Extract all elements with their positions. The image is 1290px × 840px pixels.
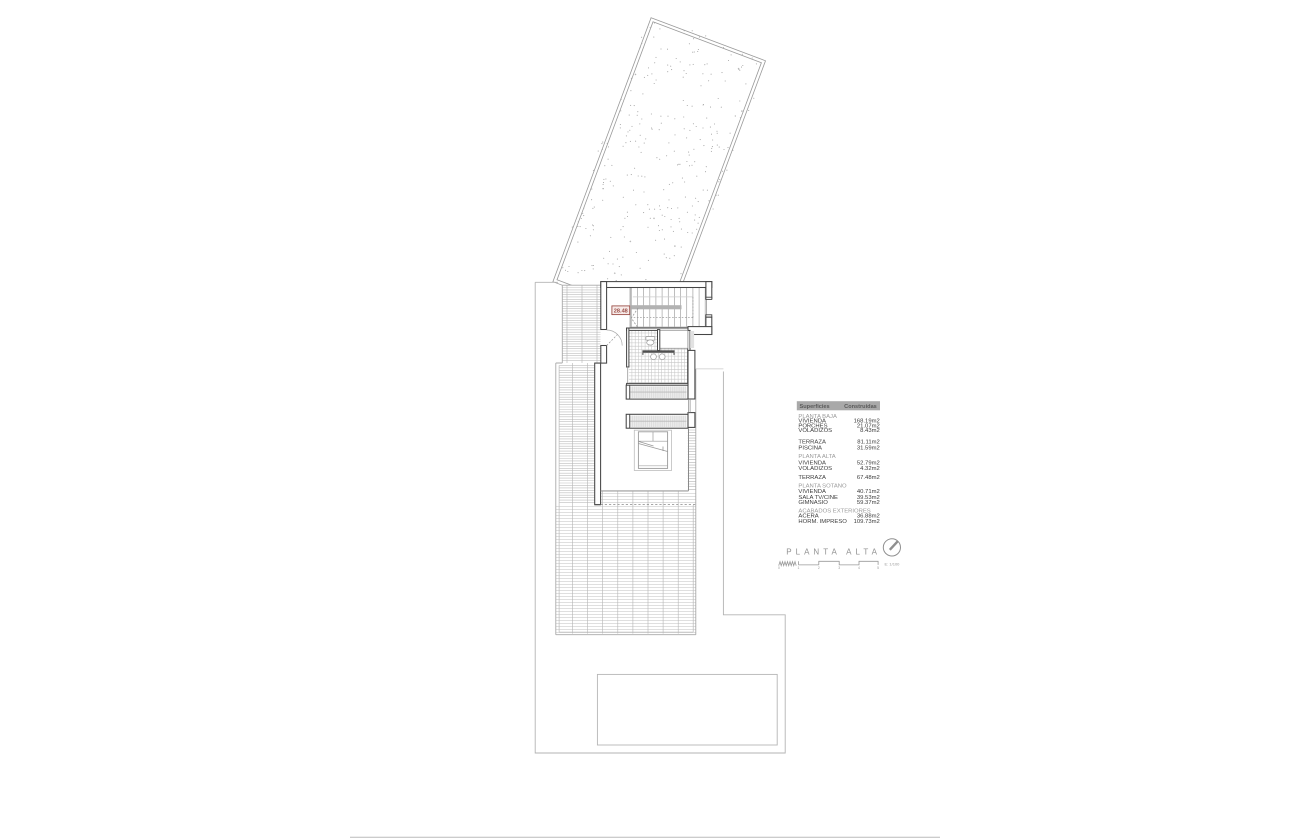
- svg-text:GIMNASIO: GIMNASIO: [798, 500, 828, 506]
- svg-text:4.32m2: 4.32m2: [860, 466, 880, 472]
- svg-text:TERRAZA: TERRAZA: [798, 475, 826, 481]
- svg-text:59.37m2: 59.37m2: [857, 500, 880, 506]
- svg-text:HORM. IMPRESO: HORM. IMPRESO: [798, 519, 847, 525]
- svg-text:VOLADIZOS: VOLADIZOS: [798, 466, 832, 472]
- svg-text:PISCINA: PISCINA: [798, 445, 822, 451]
- svg-text:PLANTA ALTA: PLANTA ALTA: [786, 547, 881, 556]
- svg-text:PLANTA ALTA: PLANTA ALTA: [798, 454, 835, 460]
- svg-text:Superficies: Superficies: [800, 404, 830, 410]
- svg-text:4: 4: [858, 566, 860, 570]
- svg-text:2: 2: [818, 566, 820, 570]
- svg-text:VOLADIZOS: VOLADIZOS: [798, 428, 832, 434]
- svg-text:0: 0: [778, 566, 780, 570]
- svg-text:Construidas: Construidas: [844, 404, 877, 410]
- svg-text:109.73m2: 109.73m2: [854, 519, 880, 525]
- svg-text:28.48: 28.48: [614, 309, 628, 315]
- svg-text:67.48m2: 67.48m2: [857, 475, 880, 481]
- svg-text:1: 1: [798, 566, 800, 570]
- svg-text:E: 1/100: E: 1/100: [885, 561, 901, 566]
- svg-text:31.59m2: 31.59m2: [857, 445, 880, 451]
- svg-text:8.43m2: 8.43m2: [860, 428, 880, 434]
- svg-text:3: 3: [838, 566, 840, 570]
- svg-text:5: 5: [877, 566, 879, 570]
